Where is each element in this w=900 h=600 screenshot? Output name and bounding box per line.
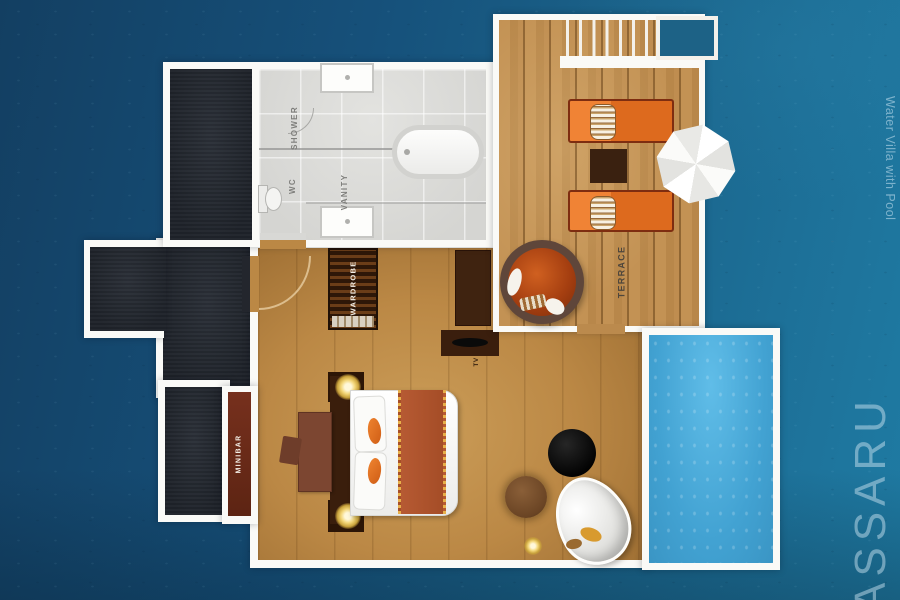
corridor-deck-floor: [163, 245, 252, 391]
towel-roll-1: [590, 104, 616, 140]
desk: [298, 412, 332, 492]
pool: [642, 328, 780, 570]
water-platform-outline: [656, 16, 718, 60]
villa-name-watermark: Water Villa with Pool: [883, 96, 897, 220]
minibar-label: MINIBAR: [236, 434, 243, 473]
sun-lounger-1: [568, 99, 674, 143]
vanity-label: VANITY: [341, 174, 349, 211]
tv-screen: [452, 338, 488, 347]
round-table: [548, 429, 596, 477]
wardrobe-shelf: [332, 316, 374, 327]
floorplan-scene: WARDROBE TV MINIBAR: [0, 0, 900, 600]
deck-stairs: [566, 20, 658, 60]
sun-lounger-2: [568, 190, 674, 232]
sink-top-faucet: [345, 75, 350, 80]
towel-roll-2: [590, 196, 616, 230]
tv-wall-unit: [455, 250, 491, 326]
brand-watermark: ASSARU: [846, 395, 896, 600]
pouf: [505, 476, 547, 518]
sink-bottom-faucet: [345, 219, 350, 224]
side-table: [590, 149, 627, 183]
terrace-door-opening: [577, 324, 625, 334]
garden-deck: [170, 69, 252, 240]
shower-label: SHOWER: [291, 106, 299, 150]
wardrobe-label: WARDROBE: [349, 261, 357, 316]
vanity-counter-line: [306, 202, 486, 204]
bed-runner: [398, 390, 446, 514]
entry-door-opening: [242, 256, 259, 312]
toilet-bowl: [265, 187, 282, 211]
floor-lamp: [524, 537, 542, 555]
jetty-arm-floor: [90, 247, 166, 331]
tv-label: TV: [474, 357, 481, 366]
bathtub-faucet: [404, 149, 410, 155]
wc-label: WC: [289, 178, 297, 194]
terrace-label: TERRACE: [618, 246, 627, 299]
lower-deck-floor: [165, 387, 223, 515]
bathroom-door-opening: [260, 233, 306, 249]
